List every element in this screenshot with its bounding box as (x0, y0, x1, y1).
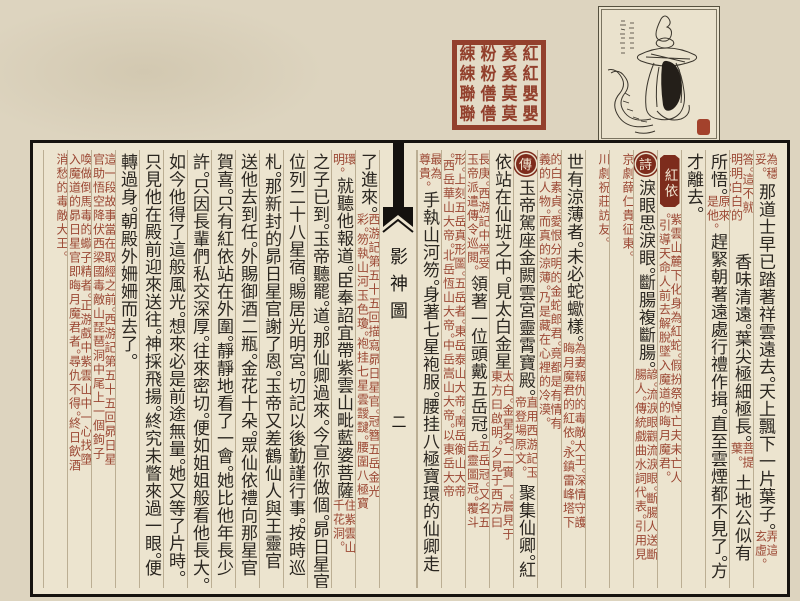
main-text: 那道士早已踏著祥雲遠去。天上飄下一片葉子。 (754, 183, 777, 530)
book-scan-page: 綀粉奚紅綀粉奚紅聯僐莫嬰聯僐莫嬰 (0, 0, 800, 601)
seal-character: 聯 (456, 104, 478, 127)
commentary-note: 的白素貞。愛恨分明的金蛇郎君。竟都是有情有義的人物。而真的涼薄。乃是藏在心裡的冷… (538, 153, 561, 588)
commentary-note: 長庚。西游記中常受玉帝派遣傳令巡閱。 (466, 153, 489, 275)
right-text-column-2: 答。這不就明明白白的告訴你了。香味清遠。葉尖極細極長。菩提葉。土地公似有 (729, 150, 753, 588)
commentary-note: 弄這玄虛。 (754, 530, 777, 564)
main-text: 送他去到任。外賜御酒二瓶。金花十朵。眾仙依禮向那星官 (236, 153, 259, 577)
main-text: 之子已到。玉帝聽罷。道。那仙卿過來。今宣你做個。昴日星官。 (308, 153, 331, 588)
main-text: 香味清遠。葉尖極細極長。 (730, 253, 753, 442)
main-text: 聚集仙卿。紅 (514, 484, 537, 579)
main-text: 世有涼薄者。未必蛇蠍樣。 (562, 153, 585, 342)
main-text: 手執山河笏。身著七星袍服。腰挂八極寶環的仙卿走 (418, 191, 441, 573)
left-text-column-3: 之子已到。玉帝聽罷。道。那仙卿過來。今宣你做個。昴日星官。 (307, 150, 331, 588)
left-text-column-2: 環明。就聽他報道。臣奉詔宜帶紫雲山毗藍婆菩薩住紫雲山千花洞。 (331, 150, 355, 588)
left-text-column-1: 了進來。西游記第五十五回描寫昴日星官。冠簪五岳金光彩。笏執山河玉色瓊。袍挂七星雲… (355, 150, 379, 588)
centerfold-title: 影神圖 (385, 247, 411, 328)
main-text: 札。那新封的昴日星官謝了恩。玉帝又差鶴仙人與王靈官 (260, 153, 283, 570)
left-text-column-9: 如今他得了這般風光。想來必是前途無量。她又等了片時。 (163, 150, 187, 588)
collector-seal: 綀粉奚紅綀粉奚紅聯僐莫嬰聯僐莫嬰 (452, 40, 546, 130)
right-text-column-9: 世有涼薄者。未必蛇蠍樣。為妻報仇的毒敵大王。深情守護晦月魔君的紅依。永鎮雷峰塔下 (561, 150, 585, 588)
right-text-column-1: 為穩妥。那道士早已踏著祥雲遠去。天上飄下一片葉子。弄這玄虛。 (753, 150, 777, 588)
left-text-column-6: 送他去到任。外賜御酒二瓶。金花十朵。眾仙依禮向那星官 (235, 150, 259, 588)
left-text-column-10: 只見他在殿前迎來送往。神採飛揚。終究未瞥來過一眼。便 (139, 150, 163, 588)
entry-title-badge: 紅依 (660, 155, 680, 207)
main-text: 趕緊朝著遠處行禮作揖。直至雲煙都不見了。方 (706, 233, 729, 580)
snake-woman-drawing (599, 7, 719, 141)
main-text: 只見他在殿前迎來送往。神採飛揚。終究未瞥來過一眼。便 (140, 153, 163, 577)
right-text-column-15: 最為尊貴。手執山河笏。身著七星袍服。腰挂八極寶環的仙卿走 (417, 150, 441, 588)
printed-page: 為穩妥。那道士早已踏著祥雲遠去。天上飄下一片葉子。弄這玄虛。答。這不就明明白白的… (30, 140, 790, 597)
page-number: 二 (388, 414, 409, 429)
main-text: 賀喜。只有紅依站在外圍。靜靜地看了一會。她比他年長少 (212, 153, 235, 577)
right-text-column-4: 才離去。 (681, 150, 705, 588)
main-text: 依站在仙班之中。見太白金星 (490, 153, 513, 370)
commentary-note: 為穩妥。 (754, 153, 777, 183)
commentary-note: 紫雲山麓下化身為紅蛇。假扮祭悼亡夫未亡人。引導天命人前去解脫墜入魔道的晦月魔君。 (658, 213, 681, 505)
centerfold-column: 影神圖 二 (379, 150, 417, 588)
main-text: 淚眼思淚眼。斷腸複斷腸。 (634, 179, 657, 368)
commentary-note: 這一段故事當在取經之前。西游記第五十五回昴日星官助悟空降伏西梁國毒敵山琵琶洞中尾… (92, 153, 115, 483)
commentary-note: 直用西游記玉帝登場原文。 (514, 396, 537, 484)
centerfold-bar (393, 143, 404, 207)
fishtail-ornament (382, 207, 414, 235)
commentary-note: 最為尊貴。 (418, 153, 441, 191)
main-text: 玉帝駕座金闕雲宮靈霄寶殿。 (514, 179, 537, 396)
seal-character: 僐 (477, 104, 499, 127)
commentary-note: 答。這不就明明白白的告訴你了。 (730, 153, 753, 253)
left-text-column-4: 位列二十八星宿。賜居光明宮。切記以後勤謹行事。按時巡 (283, 150, 307, 588)
main-text: 所悟。 (706, 153, 729, 195)
section-badge: 詩 (636, 154, 656, 174)
main-text: 轉過身。朝殿外姍姍而去了。 (116, 153, 139, 360)
main-text: 了進來。 (356, 153, 379, 213)
commentary-note: 原來是他。 (706, 195, 729, 233)
left-text-column-13: 喚做倒馬毒的蠍子精者。正游戲中紫雲山中一心找墮入魔道的昴日星官即晦月魔君者。尋仇… (67, 150, 91, 588)
left-text-column-5: 札。那新封的昴日星官謝了恩。玉帝又差鶴仙人與王靈官 (259, 150, 283, 588)
right-text-column-7: 京劇薛仁貴征東。 (609, 150, 633, 588)
right-text-column-11: 傳玉帝駕座金闕雲宮靈霄寶殿。直用西游記玉帝登場原文。聚集仙卿。紅 (513, 150, 537, 588)
right-text-column-14: 形。上刻五岳真形圖。五岳者。東岳泰山大帝。南岳衡山大帝。西岳華山大帝。北岳恆山大… (441, 150, 465, 588)
commentary-note: 京劇薛仁貴征東。 (610, 153, 633, 588)
left-text-column-14: 消愁的毒敵大王。 (43, 150, 67, 588)
main-text: 土地公似有 (730, 474, 753, 562)
main-text: 位列二十八星宿。賜居光明宮。切記以後勤謹行事。按時巡 (284, 153, 307, 577)
right-text-column-6: 詩淚眼思淚眼。斷腸複斷腸。諺。流淚眼觀流淚眼。斷腸人送斷腸人。傳統戲曲水詞代表。… (633, 150, 657, 588)
main-text: 就聽他報道。臣奉詔宜帶紫雲山毗藍婆菩薩 (332, 177, 355, 499)
right-text-column-8: 川劇祝莊訪友。 (585, 150, 609, 588)
commentary-note: 西游記第五十五回描寫昴日星官。冠簪五岳金光彩。笏執山河玉色瓊。袍挂七星雲靉靆。腰… (356, 213, 379, 589)
illustration-caption-strokes (620, 21, 634, 53)
left-text-column-7: 賀喜。只有紅依站在外圍。靜靜地看了一會。她比他年長少 (211, 150, 235, 588)
left-text-column-12: 這一段故事當在取經之前。西游記第五十五回昴日星官助悟空降伏西梁國毒敵山琵琶洞中尾… (91, 150, 115, 588)
left-text-column-11: 轉過身。朝殿外姍姍而去了。 (115, 150, 139, 588)
seal-character: 嬰 (519, 104, 541, 127)
section-badge: 傳 (516, 154, 536, 174)
commentary-note: 形。上刻五岳真形圖。五岳者。東岳泰山大帝。南岳衡山大帝。西岳華山大帝。北岳恆山大… (442, 153, 465, 553)
commentary-note: 太白。金星名。二實一。晨見于東方曰啟明。夕見于西方曰 (490, 370, 513, 588)
right-text-column-3: 所悟。原來是他。趕緊朝著遠處行禮作揖。直至雲煙都不見了。方 (705, 150, 729, 588)
commentary-note: 住紫雲山千花洞。 (332, 499, 355, 588)
commentary-note: 環明。 (332, 153, 355, 177)
commentary-note: 為妻報仇的毒敵大王。深情守護晦月魔君的紅依。永鎮雷峰塔下 (562, 342, 585, 588)
right-text-column-12: 依站在仙班之中。見太白金星太白。金星名。二實一。晨見于東方曰啟明。夕見于西方曰 (489, 150, 513, 588)
illustration-hongyi (598, 6, 720, 142)
right-page-columns: 為穩妥。那道士早已踏著祥雲遠去。天上飄下一片葉子。弄這玄虛。答。這不就明明白白的… (417, 150, 777, 588)
commentary-note: 消愁的毒敵大王。 (44, 153, 67, 588)
commentary-note: 川劇祝莊訪友。 (586, 153, 609, 588)
main-text: 才離去。 (682, 153, 705, 213)
main-text: 如今他得了這般風光。想來必是前途無量。她又等了片時。 (164, 153, 187, 577)
seal-character: 莫 (498, 104, 520, 127)
right-text-column-13: 長庚。西游記中常受玉帝派遣傳令巡閱。領著一位頭戴五岳冠。五岳冠。又名五岳靈圖冠。… (465, 150, 489, 588)
main-text: 許。只因長輩們私交深厚。往來密切。便如姐姐般看他長大。 (188, 153, 211, 584)
illustration-mini-seal (697, 119, 710, 135)
left-text-column-8: 許。只因長輩們私交深厚。往來密切。便如姐姐般看他長大。 (187, 150, 211, 588)
right-text-column-5: 紅依紫雲山麓下化身為紅蛇。假扮祭悼亡夫未亡人。引導天命人前去解脫墜入魔道的晦月魔… (657, 150, 681, 588)
main-text: 領著一位頭戴五岳冠。 (466, 275, 489, 440)
right-text-column-10: 的白素貞。愛恨分明的金蛇郎君。竟都是有情有義的人物。而真的涼薄。乃是藏在心裡的冷… (537, 150, 561, 588)
commentary-note: 五岳冠。又名五岳靈圖冠。覆斗 (466, 440, 489, 589)
commentary-note: 菩提葉。 (730, 442, 753, 474)
commentary-note: 諺。流淚眼觀流淚眼。斷腸人送斷腸人。傳統戲曲水詞代表。引用見 (634, 368, 657, 588)
left-page-columns: 了進來。西游記第五十五回描寫昴日星官。冠簪五岳金光彩。笏執山河玉色瓊。袍挂七星雲… (43, 150, 379, 588)
commentary-note: 喚做倒馬毒的蠍子精者。正游戲中紫雲山中一心找墮入魔道的昴日星官即晦月魔君者。尋仇… (68, 153, 91, 498)
